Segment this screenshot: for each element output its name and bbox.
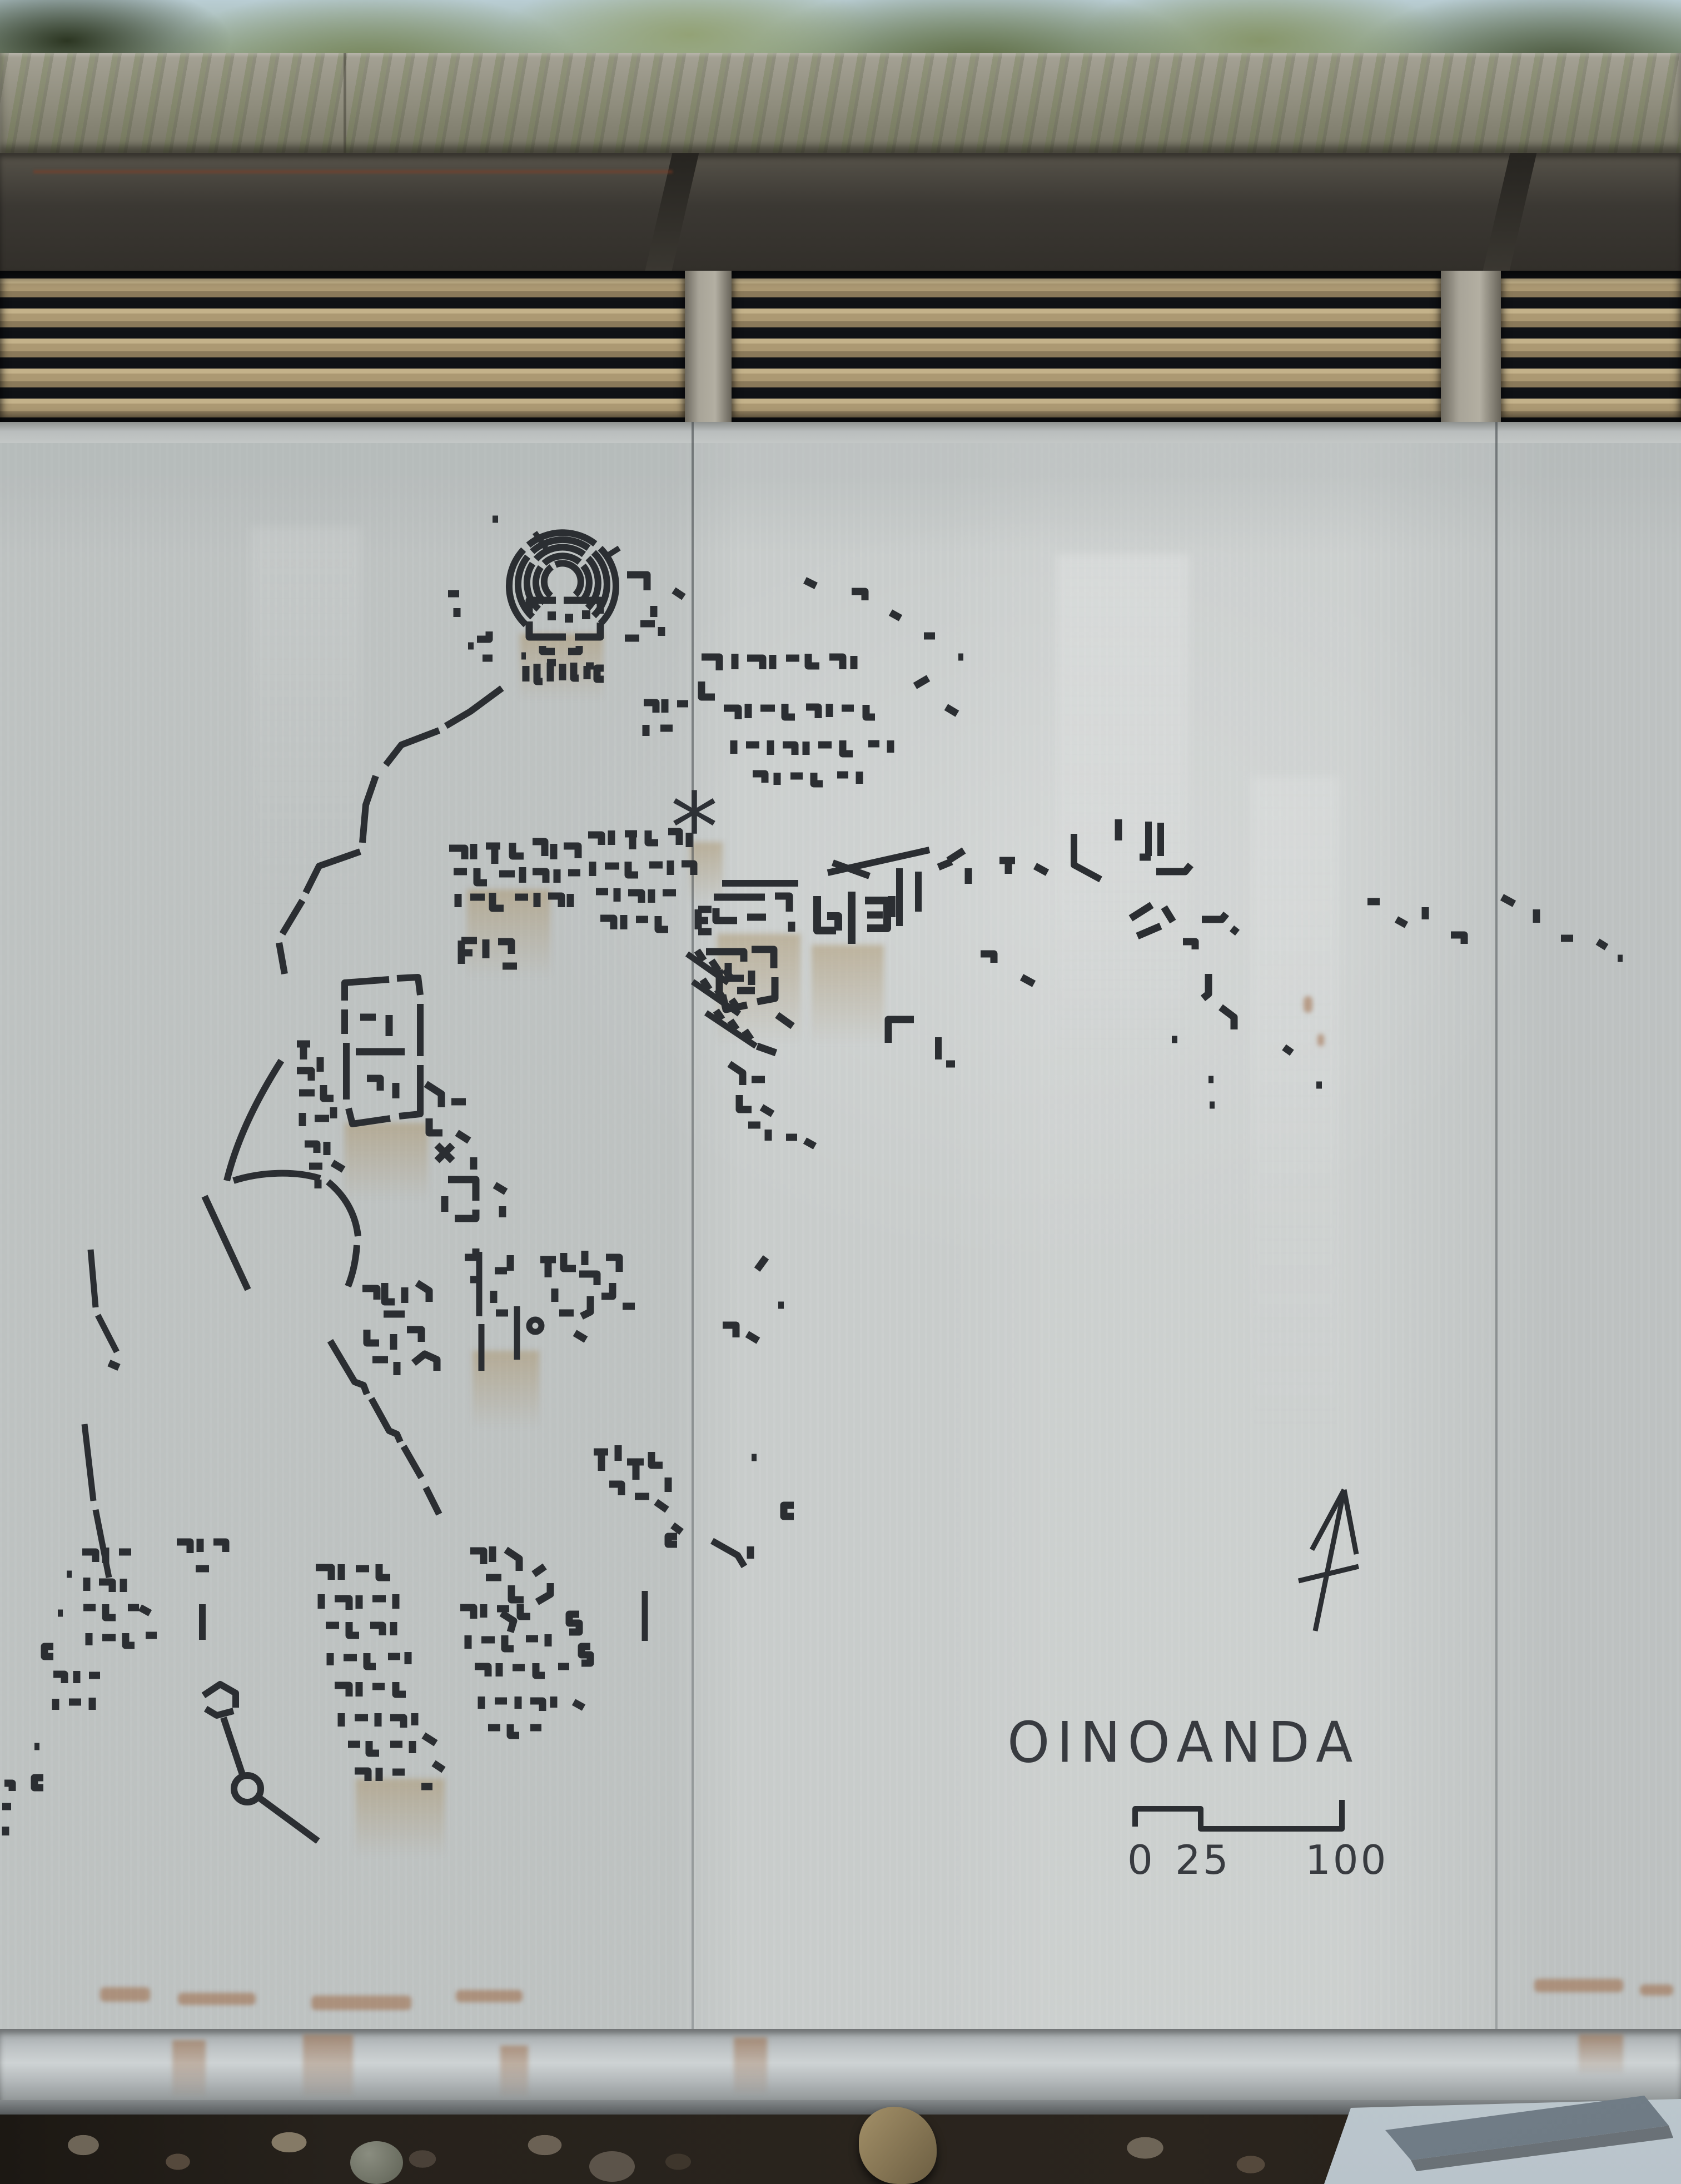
map-cut-segment [335,1599,349,1610]
map-cut-segment [205,1196,248,1290]
map-cut-segment [140,1608,150,1613]
map-cut-segment [126,1633,135,1645]
map-cut-segment [227,1061,281,1181]
map-cut-segment [506,1550,519,1571]
map-cut-segment [1164,907,1173,922]
map-cut-segment [745,1031,751,1039]
map-cut-segment [477,631,489,639]
map-cut-segment [739,1095,752,1110]
map-cut-segment [96,1510,109,1578]
map-cut-segment [1156,865,1191,872]
map-cut-segment [109,1363,119,1367]
map-cut-segment [477,868,487,883]
map-cut-segment [533,842,545,856]
map-cut-segment [606,1257,619,1272]
map-cut-segment [724,708,738,719]
map-cut-segment [513,843,524,856]
stone [350,2141,403,2184]
map-cut-segment [651,1452,663,1465]
map-cut-segment [569,1614,579,1632]
map-cut-segment [177,1542,190,1553]
map-cut-segment [575,1333,586,1340]
map-cut-segment [367,1078,380,1091]
stone [589,2151,635,2182]
map-cut-segment [520,1604,530,1616]
map-cut-segment [588,835,601,845]
map-cut-segment [1202,914,1226,919]
map-cut-segment [4,1783,12,1791]
map-cut-segment [84,1424,93,1501]
map-cut-segment [297,1071,311,1081]
map-cut-segment [424,1735,436,1743]
map-cut-segment [1284,1047,1292,1053]
map-cut-segment [948,850,964,860]
map-cut-segment [644,703,656,713]
map-cut-segment [362,1288,377,1300]
map-cut-segment [385,1283,395,1302]
map-cut-segment [564,1253,576,1268]
map-cut-segment [426,1487,439,1514]
map-cut-segment [762,1107,773,1114]
map-cut-segment [355,1771,368,1781]
map-cut-segment [628,862,638,875]
map-cut-segment [1451,935,1464,944]
map-cut-segment [460,1608,474,1619]
map-cut-segment [470,1551,484,1564]
map-cut-segment [581,1646,590,1663]
map-cut-segment [581,1296,590,1316]
map-cut-segment [706,952,744,962]
map-cut-segment [730,1021,737,1029]
map-cut-segment [843,740,853,754]
map-cut-segment [223,1718,242,1774]
map-cut-segment [537,1583,550,1602]
map-cut-segment [399,1065,420,1116]
map-tower-ring [234,1775,261,1802]
map-cut-segment [82,1552,96,1562]
map-cut-segment [805,1141,815,1146]
map-cut-segment [537,664,543,681]
map-cut-segment [1074,834,1101,879]
beam-rust-streak [734,2037,767,2093]
landmark-asterisk-marker: * [670,780,718,876]
beam-rust-streak [1579,2034,1623,2073]
map-cut-segment [732,999,738,1008]
map-cut-segment [533,872,546,883]
map-cut-segment [495,1185,506,1192]
map-cut-segment [1131,905,1152,918]
beam-rust-streak [303,2034,353,2096]
map-cut-segment [628,893,641,903]
map-cut-segment [729,1064,743,1085]
map-cut-segment [367,1653,376,1666]
map-cut-segment [203,1684,236,1708]
map-cut-segment [501,1613,514,1632]
beam-rust-streak [500,2046,528,2096]
map-cut-segment [829,657,843,669]
map-cut-segment [888,1019,914,1043]
map-cut-segment [498,942,511,954]
map-cut-segment [279,943,285,974]
map-cut-segment [574,663,579,678]
map-cut-segment [805,580,816,586]
map-cut-segment [866,705,875,717]
map-cut-segment [511,1585,524,1600]
map-cut-segment [1022,977,1034,984]
map-cut-segment [306,852,360,893]
map-cut-segment [757,977,775,1002]
map-cut-segment [434,1763,444,1770]
map-cut-segment [407,1330,421,1342]
map-cut-segment [568,646,579,651]
map-cut-segment [783,745,795,755]
map-cut-segment [1396,919,1406,925]
map-cut-segment [753,774,765,783]
map-cut-segment [426,1084,441,1107]
map-cut-segment [747,658,763,669]
map-cut-segment [543,646,555,651]
map-cut-segment [34,1778,43,1788]
map-cut-segment [747,1334,758,1341]
map-cut-segment [386,730,439,765]
map-cut-segment [332,1163,344,1170]
map-cut-segment [369,1741,379,1753]
map-cut-segment [91,1250,96,1307]
map-cut-segment [397,977,420,995]
map-cut-group [2,519,1623,1841]
map-cut-segment [1315,1490,1344,1631]
scale-label-25: 25 [1175,1837,1231,1883]
map-cut-segment [349,1108,390,1124]
map-cut-segment [806,707,818,718]
map-cut-segment [785,704,795,717]
map-cut-segment [510,1724,519,1735]
map-cut-segment [891,613,901,618]
map-cut-segment [575,623,600,637]
map-cut-segment [946,707,957,714]
map-cut-segment [627,575,647,590]
map-cut-segment [656,1502,667,1510]
map-cut-segment [316,1568,331,1580]
bottom-rail-beam [0,2029,1681,2100]
map-cut-segment [505,1635,514,1649]
map-cut-segment [534,1566,545,1574]
map-cut-segment [574,1702,584,1708]
map-cut-segment [673,1525,682,1532]
map-cut-segment [390,1718,404,1728]
map-cut-segment [597,668,604,679]
map-tower-ring [529,1320,541,1332]
map-cut-segment [579,1274,597,1285]
map-cut-segment [417,1283,429,1302]
map-cut-segment [349,1622,359,1635]
map-cut-segment [530,1701,543,1711]
map-cut-segment [752,949,774,968]
map-cut-segment [658,916,668,929]
map-cut-segment [233,1173,320,1181]
map-cut-segment [702,681,715,697]
map-cut-segment [98,1315,117,1352]
map-cut-segment [396,1682,406,1694]
map-cut-segment [1137,926,1161,936]
map-cut-segment [915,678,928,686]
map-cut-segment [213,1542,226,1552]
map-cut-segment [404,1446,421,1477]
map-cut-segment [1232,928,1237,933]
map-cut-segment [475,1666,488,1676]
map-cut-segment [712,1541,744,1566]
map-cut-segment [379,1564,390,1578]
map-cut-segment [449,848,465,859]
map-cut-segment [455,1210,476,1218]
map-cut-segment [1183,942,1195,949]
map-cut-segment [600,918,614,929]
map-cut-segment [367,1330,379,1343]
map-cut-segment [1598,942,1607,947]
map-cut-segment [852,591,865,600]
oinoanda-city-map [0,0,1681,2184]
map-cut-segment [668,1536,677,1544]
map-cut-segment [44,1646,53,1656]
map-cut-segment [429,1118,442,1133]
map-cut-segment [757,1257,766,1270]
photo-of-map-sign: OINOANDA * 0 25 100 [0,0,1681,2184]
map-cut-segment [362,776,376,843]
map-cut-segment [784,1505,794,1516]
map-cut-segment [328,1182,358,1236]
map-cut-segment [1221,1007,1234,1029]
map-cut-segment [414,1354,437,1371]
map-cut-segment [99,1582,112,1592]
map-cut-segment [106,1604,116,1618]
map-cut-segment [371,1399,400,1442]
map-cut-segment [446,688,502,726]
map-cut-segment [206,1709,233,1715]
map-cut-segment [723,1325,736,1337]
map-cut-segment [345,979,389,1001]
map-cut-segment [808,654,819,666]
map-cut-segment [493,893,504,908]
map-cut-segment [324,1085,334,1098]
map-cut-segment [1203,974,1208,998]
map-cut-segment [607,548,619,556]
map-cut-segment [777,1015,793,1026]
map-cut-segment [981,954,994,963]
map-cut-segment [648,830,658,843]
map-cut-segment [544,563,581,596]
map-cut-segment [536,1663,545,1675]
map-cut-segment [716,908,737,921]
map-cut-segment [757,1046,776,1053]
map-cut-segment [601,1283,613,1296]
map-cut-segment [674,590,684,597]
map-cut-segment [548,896,561,907]
map-cut-segment [348,1245,357,1286]
map-cut-segment [716,1011,722,1019]
map-cut-segment [53,1674,64,1683]
map-cut-segment [1502,897,1514,904]
map-cut-segment [1035,866,1047,873]
map-cut-segment [448,1180,476,1201]
map-cut-segment [457,1133,469,1141]
map-cut-segment [1344,1490,1356,1554]
map-cut-segment [1135,1800,1342,1829]
site-title: OINOANDA [1007,1710,1360,1775]
map-cut-segment [259,1798,318,1841]
map-cut-segment [687,954,728,983]
scale-label-0: 0 [1127,1837,1155,1883]
map-cut-segment [529,621,566,637]
map-cut-segment [702,657,719,670]
beam-rust-streak [172,2040,206,2096]
map-cut-segment [335,1685,349,1697]
map-cut-segment [465,1248,476,1257]
map-cut-segment [330,1341,367,1394]
map-cut-segment [564,846,578,858]
map-cut-segment [282,901,302,934]
scale-label-100: 100 [1305,1837,1388,1883]
map-cut-segment [609,1484,621,1495]
map-cut-segment [370,1625,382,1635]
map-cut-segment [305,1144,317,1153]
map-cut-segment [775,896,789,912]
map-cut-segment [814,773,823,784]
